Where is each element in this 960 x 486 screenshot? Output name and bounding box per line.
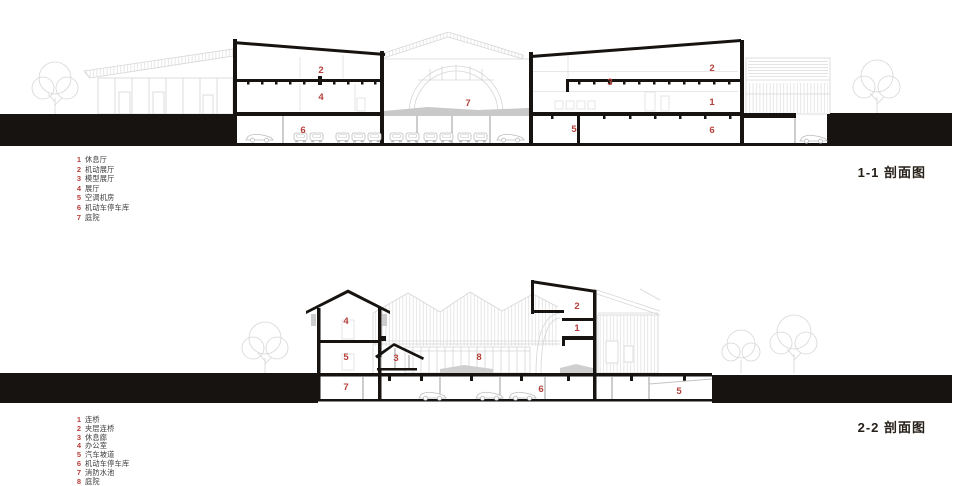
legend-item-text: 空调机房 — [85, 194, 115, 201]
legend-item-text: 休息廊 — [85, 434, 107, 441]
legend-item-number: 7 — [74, 214, 81, 222]
legend-item-number: 4 — [74, 442, 81, 450]
legend-item-number: 5 — [74, 194, 81, 202]
wall-tab — [311, 314, 316, 326]
legend-item-number: 2 — [74, 425, 81, 433]
ground-mound — [560, 364, 593, 373]
section-1-1-drawing — [0, 0, 960, 155]
tree-icon — [853, 60, 900, 114]
legend-item: 7消防水池 — [74, 469, 129, 478]
section-2-2-title: 2-2 剖面图 — [726, 417, 926, 436]
legend-item-text: 休息厅 — [85, 156, 107, 163]
legend-item-number: 1 — [74, 416, 81, 424]
wall-tab — [382, 314, 387, 326]
legend-item-number: 6 — [74, 204, 81, 212]
legend-item-number: 1 — [74, 156, 81, 164]
tree-icon — [770, 315, 817, 373]
section-2-2-legend: 1连桥2夹层连桥3休息廊4办公室5汽车坡道6机动车停车库7消防水池8庭院 — [74, 416, 129, 486]
legend-item-text: 消防水池 — [85, 469, 115, 476]
legend-item-number: 5 — [74, 451, 81, 459]
tree-icon — [722, 330, 760, 373]
legend-item: 3模型展厅 — [74, 175, 129, 185]
legend-item-number: 2 — [74, 166, 81, 174]
legend-item-text: 庭院 — [85, 214, 100, 221]
legend-item-text: 展厅 — [85, 185, 100, 192]
legend-item-number: 6 — [74, 460, 81, 468]
left-background-building — [84, 49, 233, 114]
legend-item: 8庭院 — [74, 478, 129, 486]
ground-mass-right — [712, 375, 952, 403]
legend-item: 6机动车停车库 — [74, 204, 129, 214]
right-background-building — [746, 58, 830, 114]
legend-item-number: 4 — [74, 185, 81, 193]
arched-hall-elevation — [381, 32, 529, 113]
ground-mass-left — [0, 373, 318, 403]
legend-item: 7庭院 — [74, 214, 129, 224]
legend-item-text: 机动车停车库 — [85, 204, 129, 211]
right-background-building — [594, 289, 660, 373]
courtyard-ground — [384, 107, 529, 116]
legend-item-number: 3 — [74, 175, 81, 183]
legend-item-text: 机动车停车库 — [85, 460, 129, 467]
legend-item-text: 夹层连桥 — [85, 425, 115, 432]
section-1-1-title: 1-1 剖面图 — [726, 162, 926, 181]
legend-item-text: 办公室 — [85, 442, 107, 449]
legend-item-text: 模型展厅 — [85, 175, 115, 182]
drawing-sheet: 246732156 457382165 1休息厅2机动展厅3模型展厅4展厅5空调… — [0, 0, 960, 486]
legend-item-text: 汽车坡道 — [85, 451, 115, 458]
tree-icon — [242, 322, 288, 373]
legend-item-text: 机动展厅 — [85, 166, 115, 173]
parked-cars — [246, 133, 827, 143]
legend-item-number: 7 — [74, 469, 81, 477]
ground-mass-right — [830, 113, 952, 146]
legend-item-text: 连桥 — [85, 416, 100, 423]
background-elevations — [32, 32, 900, 116]
legend-item-number: 8 — [74, 478, 81, 486]
legend-item-text: 庭院 — [85, 478, 100, 485]
tree-icon — [32, 62, 78, 116]
legend-item-number: 3 — [74, 434, 81, 442]
section-1-1-legend: 1休息厅2机动展厅3模型展厅4展厅5空调机房6机动车停车库7庭院 — [74, 156, 129, 223]
section-2-2-drawing — [0, 256, 960, 406]
ground-mass-left — [0, 114, 237, 146]
